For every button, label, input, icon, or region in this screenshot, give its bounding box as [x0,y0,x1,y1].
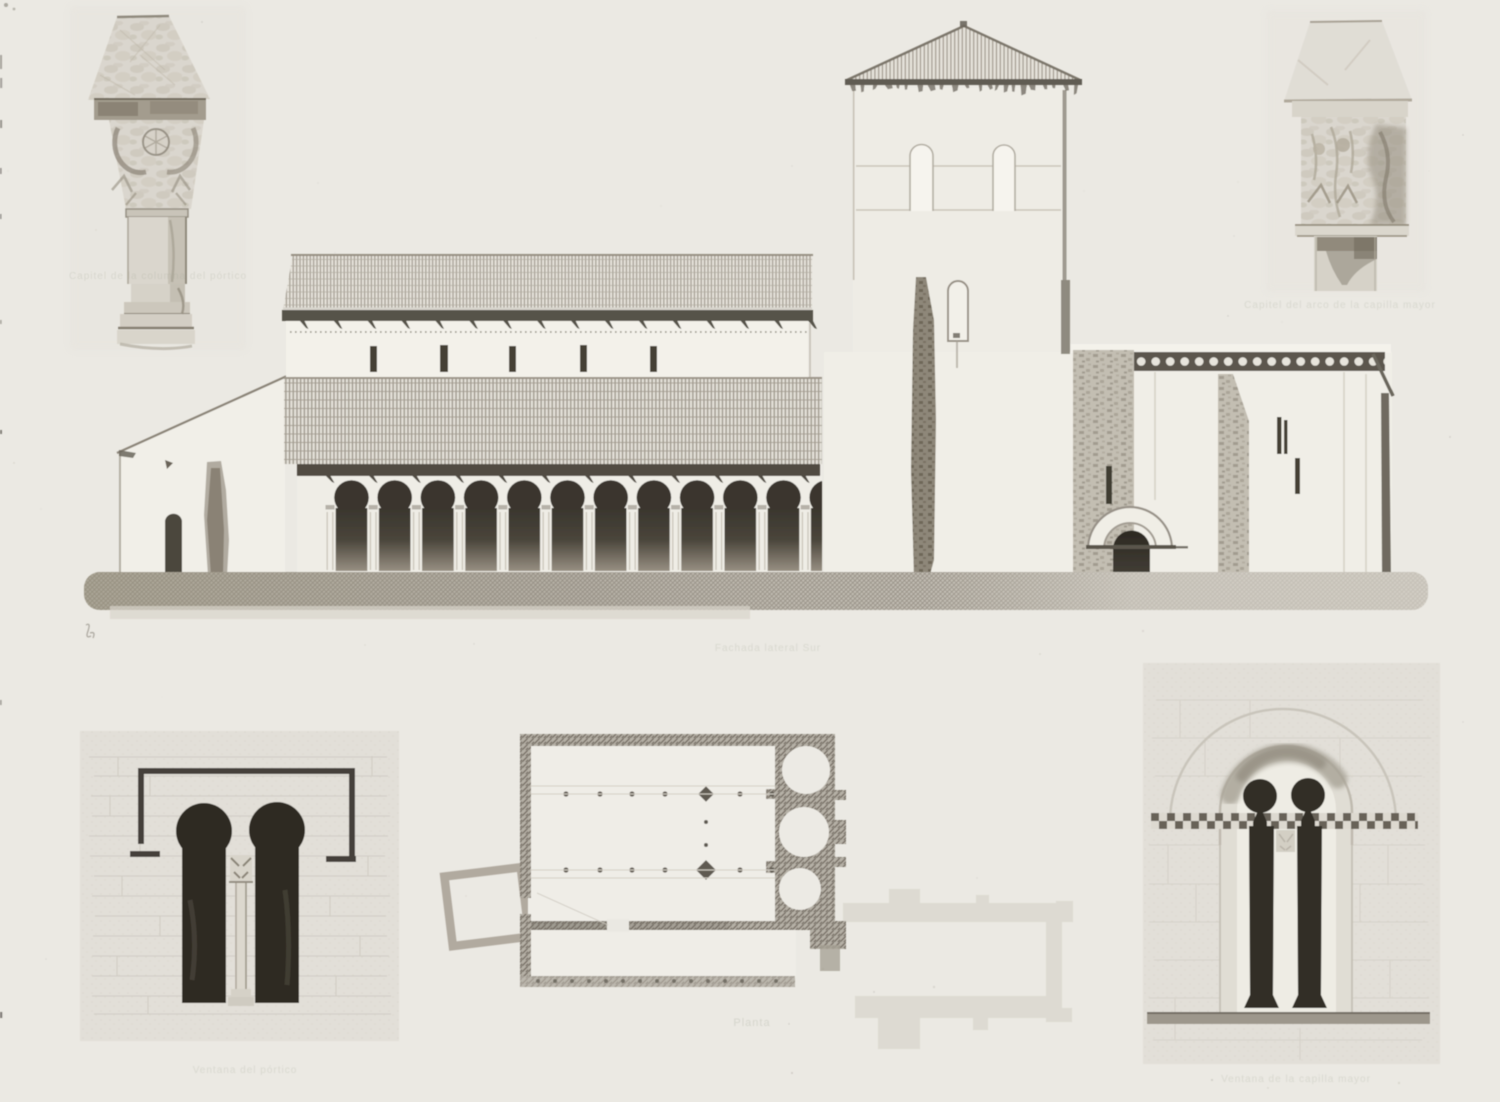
svg-text:Ventana del pórtico: Ventana del pórtico [193,1065,298,1076]
svg-text:Ventana de la capilla mayor: Ventana de la capilla mayor [1221,1074,1371,1085]
svg-text:Planta: Planta [733,1017,770,1029]
svg-text:Capitel de la columna del pórt: Capitel de la columna del pórtico [69,271,247,282]
svg-text:Capitel del arco de la capilla: Capitel del arco de la capilla mayor [1244,300,1436,311]
svg-text:Fachada lateral Sur: Fachada lateral Sur [715,643,821,654]
